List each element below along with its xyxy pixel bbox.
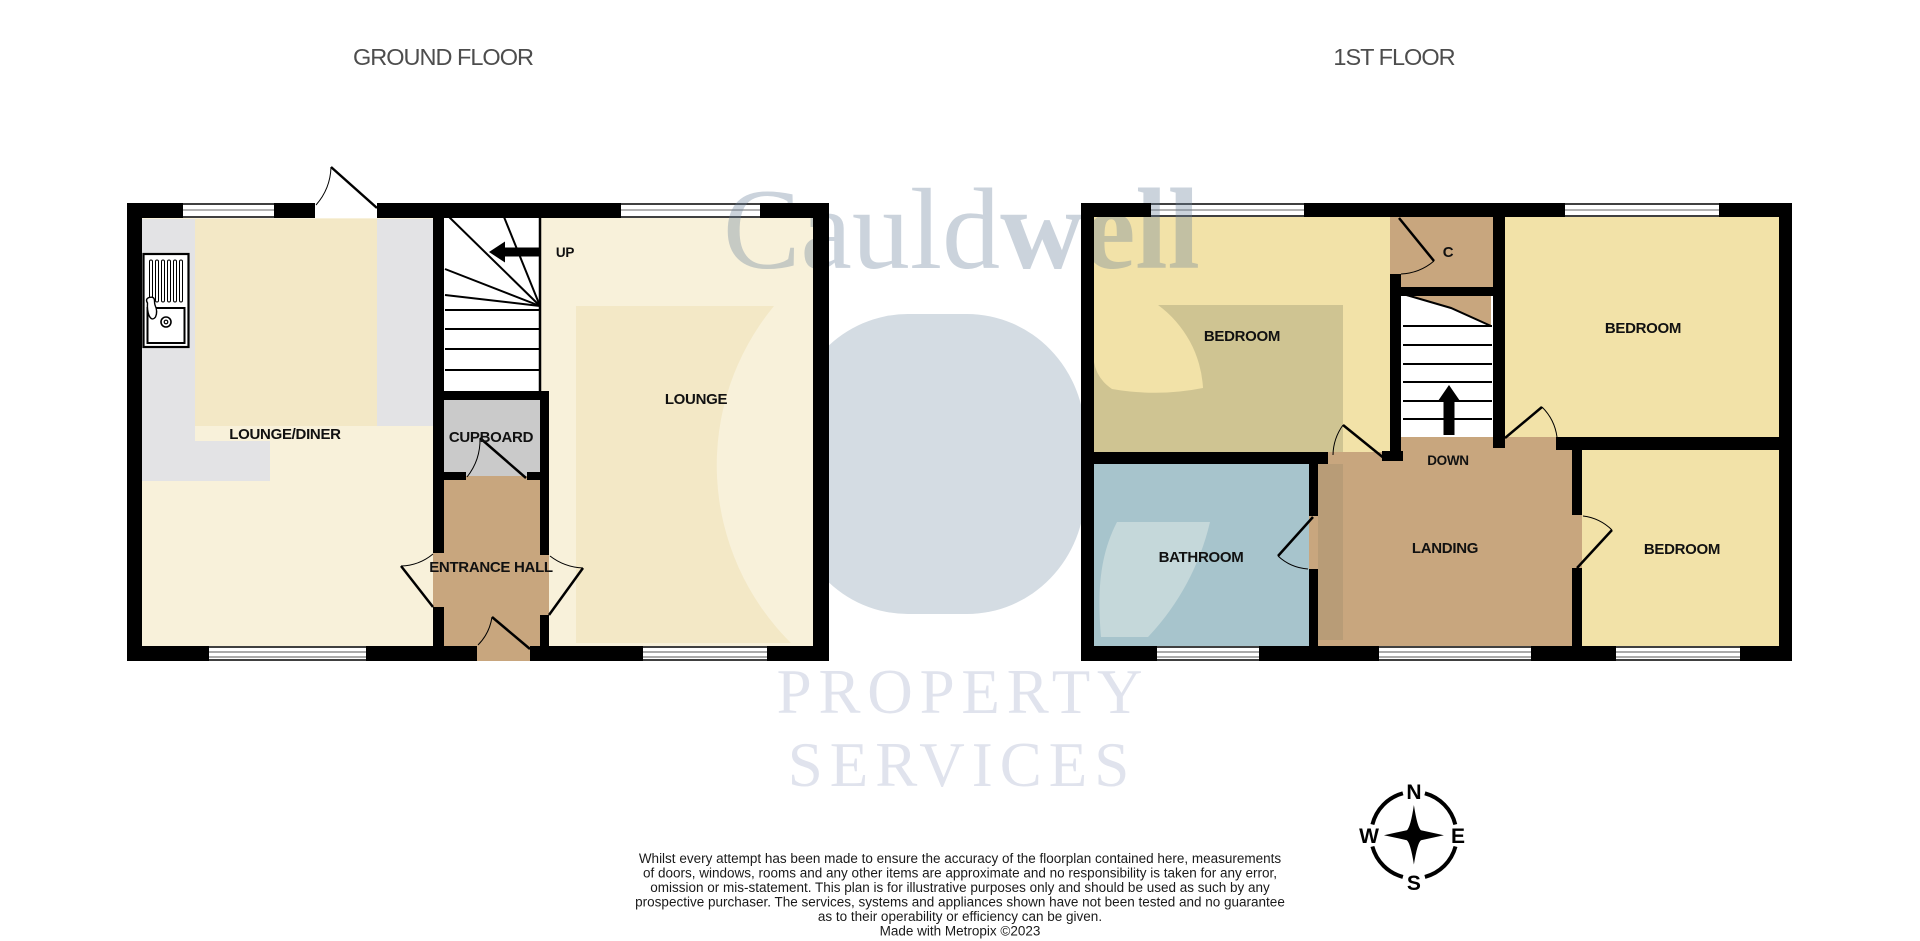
svg-text:N: N: [1406, 781, 1421, 804]
svg-text:ENTRANCE HALL: ENTRANCE HALL: [429, 559, 553, 576]
svg-text:BEDROOM: BEDROOM: [1204, 328, 1280, 345]
svg-text:BATHROOM: BATHROOM: [1159, 549, 1244, 566]
svg-text:SERVICES: SERVICES: [788, 730, 1137, 800]
svg-text:LOUNGE/DINER: LOUNGE/DINER: [229, 426, 341, 443]
svg-text:as to their operability or eff: as to their operability or efficiency ca…: [818, 909, 1102, 924]
svg-text:of doors, windows, rooms and a: of doors, windows, rooms and any other i…: [643, 866, 1277, 881]
svg-text:BEDROOM: BEDROOM: [1644, 541, 1720, 558]
svg-text:W: W: [1359, 825, 1379, 848]
svg-text:UP: UP: [556, 245, 574, 260]
svg-text:LOUNGE: LOUNGE: [665, 391, 728, 408]
svg-text:BEDROOM: BEDROOM: [1605, 320, 1681, 337]
svg-text:GROUND FLOOR: GROUND FLOOR: [353, 44, 533, 70]
svg-text:prospective purchaser. The ser: prospective purchaser. The services, sys…: [635, 895, 1285, 910]
svg-text:LANDING: LANDING: [1412, 540, 1478, 557]
svg-text:PROPERTY: PROPERTY: [777, 657, 1150, 727]
svg-text:S: S: [1407, 872, 1421, 895]
svg-text:Whilst every attempt has been: Whilst every attempt has been made to en…: [639, 851, 1282, 866]
svg-text:omission or mis-statement. Thi: omission or mis-statement. This plan is …: [650, 880, 1270, 895]
svg-text:CUPBOARD: CUPBOARD: [449, 429, 534, 446]
svg-text:1ST FLOOR: 1ST FLOOR: [1333, 44, 1454, 70]
svg-text:E: E: [1451, 825, 1465, 848]
svg-text:DOWN: DOWN: [1427, 453, 1469, 468]
svg-text:Made with Metropix ©2023: Made with Metropix ©2023: [880, 924, 1041, 939]
svg-text:C: C: [1443, 244, 1454, 261]
svg-text:Cauldwell: Cauldwell: [723, 166, 1200, 294]
